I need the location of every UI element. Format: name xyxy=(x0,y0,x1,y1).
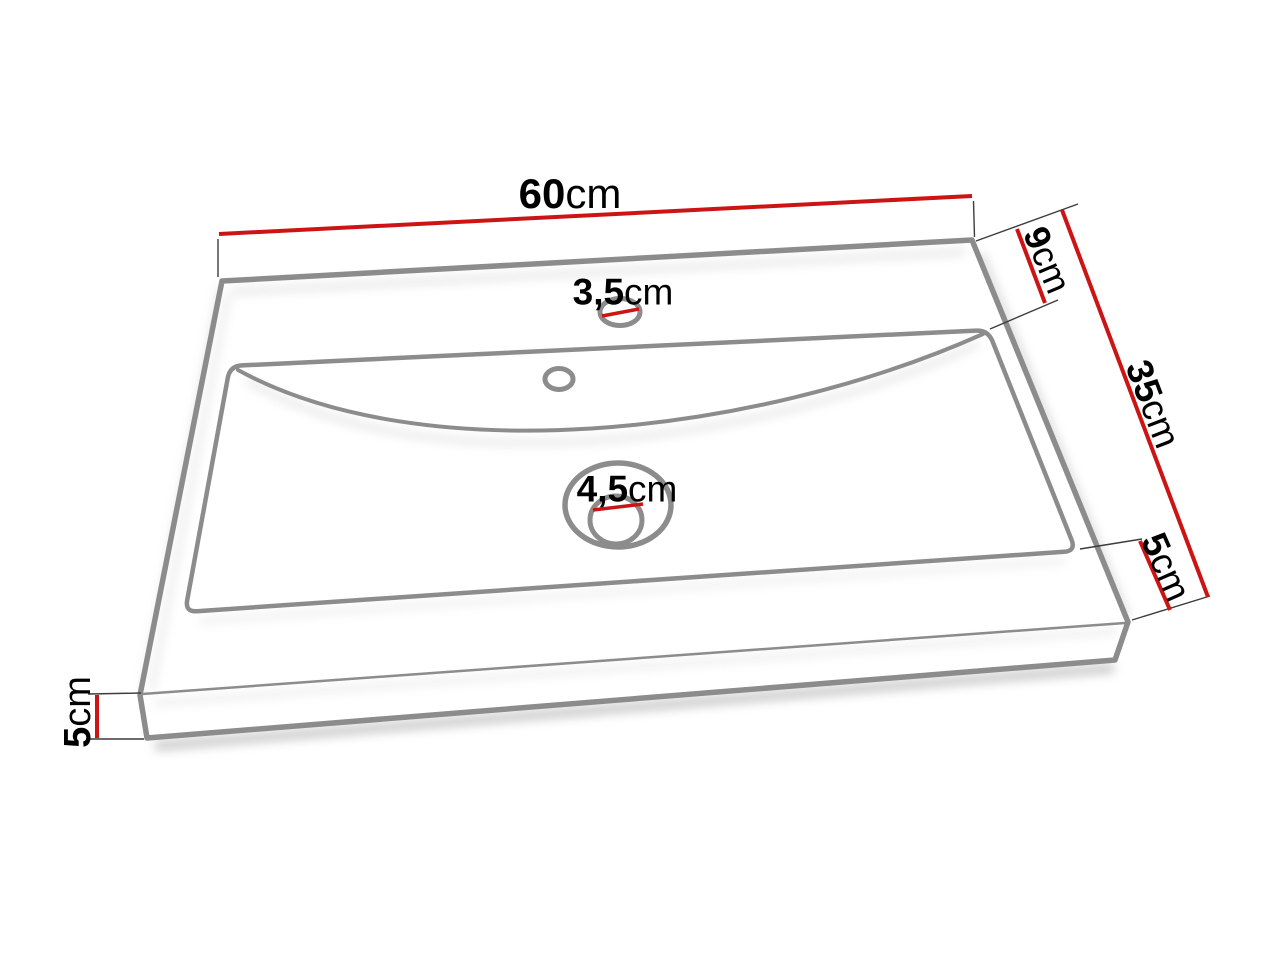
width-value: 60 xyxy=(519,170,566,217)
width-unit: cm xyxy=(565,170,621,217)
tap-hole-unit: cm xyxy=(624,272,673,313)
width-dimension-label: 60cm xyxy=(519,173,622,215)
height-dimension-label: 5cm xyxy=(59,676,97,748)
drain-value: 4,5 xyxy=(577,469,628,510)
sink-dimension-diagram: 60cm 3,5cm 4,5cm 9cm 35cm 5cm 5cm xyxy=(0,0,1280,960)
height-value: 5 xyxy=(57,727,99,748)
drain-unit: cm xyxy=(628,469,677,510)
tap-hole-value: 3,5 xyxy=(573,272,624,313)
width-extension-right xyxy=(974,201,975,237)
overflow-hole xyxy=(545,369,573,390)
drain-dimension-label: 4,5cm xyxy=(577,471,678,508)
tap-hole-dimension-label: 3,5cm xyxy=(573,274,674,311)
height-unit: cm xyxy=(57,676,99,727)
